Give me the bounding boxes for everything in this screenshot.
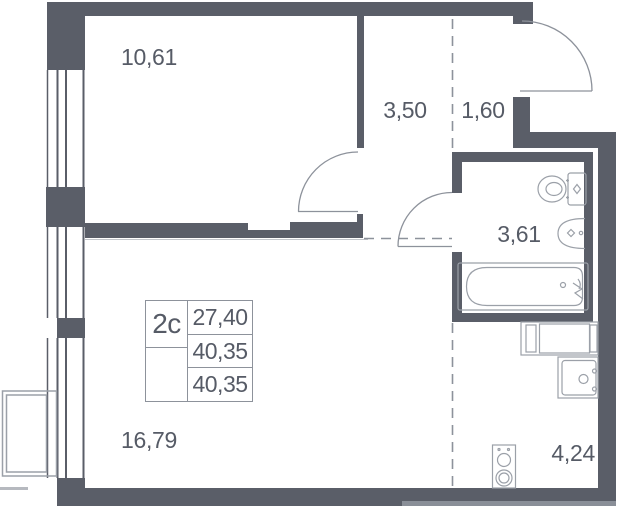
window-symbol-bedroom xyxy=(48,70,84,187)
entrance-door-jamb xyxy=(513,16,533,24)
exterior-wall-right xyxy=(598,132,616,506)
zone-boundaries xyxy=(364,19,453,487)
balcony-symbol xyxy=(3,391,57,476)
exterior-wall-left-pillar-top xyxy=(47,2,85,70)
bathroom-wall-bottom xyxy=(452,313,593,322)
living-area-value: 27,40 xyxy=(188,301,252,335)
kitchen-counter-symbol xyxy=(521,322,598,355)
window-symbol-living-upper xyxy=(48,227,84,318)
kitchen-sink-symbol xyxy=(558,357,598,398)
info-table-left-column: 2с xyxy=(146,301,188,401)
floor-plan-svg xyxy=(0,0,620,506)
area-label-living: 16,79 xyxy=(114,429,184,452)
area-label-hall: 3,50 xyxy=(370,99,440,122)
rooms-area-value: 40,35 xyxy=(188,335,252,369)
interior-wall-bedroom-hall xyxy=(357,16,364,148)
window-symbol-living-lower xyxy=(48,338,84,478)
washbasin-symbol xyxy=(558,219,585,249)
interior-wall-bedroom-living-thin xyxy=(248,230,290,238)
windows xyxy=(48,70,84,478)
area-label-bedroom: 10,61 xyxy=(114,46,184,69)
exterior-wall-left-pier1 xyxy=(46,187,85,227)
total-area-value: 40,35 xyxy=(188,368,252,401)
info-table-right-column: 27,40 40,35 40,35 xyxy=(188,301,252,401)
apartment-type-label: 2с xyxy=(146,301,187,348)
interior-wall-bedroom-living-b xyxy=(290,222,363,238)
interior-wall-bedroom-living-a xyxy=(85,223,248,238)
door-arc-bedroom xyxy=(298,152,358,212)
bathroom-wall-top xyxy=(452,152,593,162)
stove-symbol xyxy=(493,445,516,488)
bathroom-wall-left-upper xyxy=(452,162,462,193)
area-label-kitchen: 4,24 xyxy=(531,442,595,465)
door-hinge-tab xyxy=(357,214,363,223)
wall-detail-lines xyxy=(0,240,616,506)
door-arc-entrance xyxy=(520,21,592,91)
exterior-wall-top xyxy=(47,2,533,16)
area-label-entry: 1,60 xyxy=(448,99,518,122)
info-table-empty-cell xyxy=(146,348,187,401)
exterior-wall-left-pier2 xyxy=(57,318,85,338)
info-table: 2с 27,40 40,35 40,35 xyxy=(145,300,253,402)
floor-plan: 10,61 3,50 1,60 3,61 16,79 4,24 2с 27,40… xyxy=(0,0,620,506)
area-label-bathroom: 3,61 xyxy=(484,223,554,246)
bathtub-symbol xyxy=(458,263,588,310)
toilet-symbol xyxy=(538,173,586,205)
